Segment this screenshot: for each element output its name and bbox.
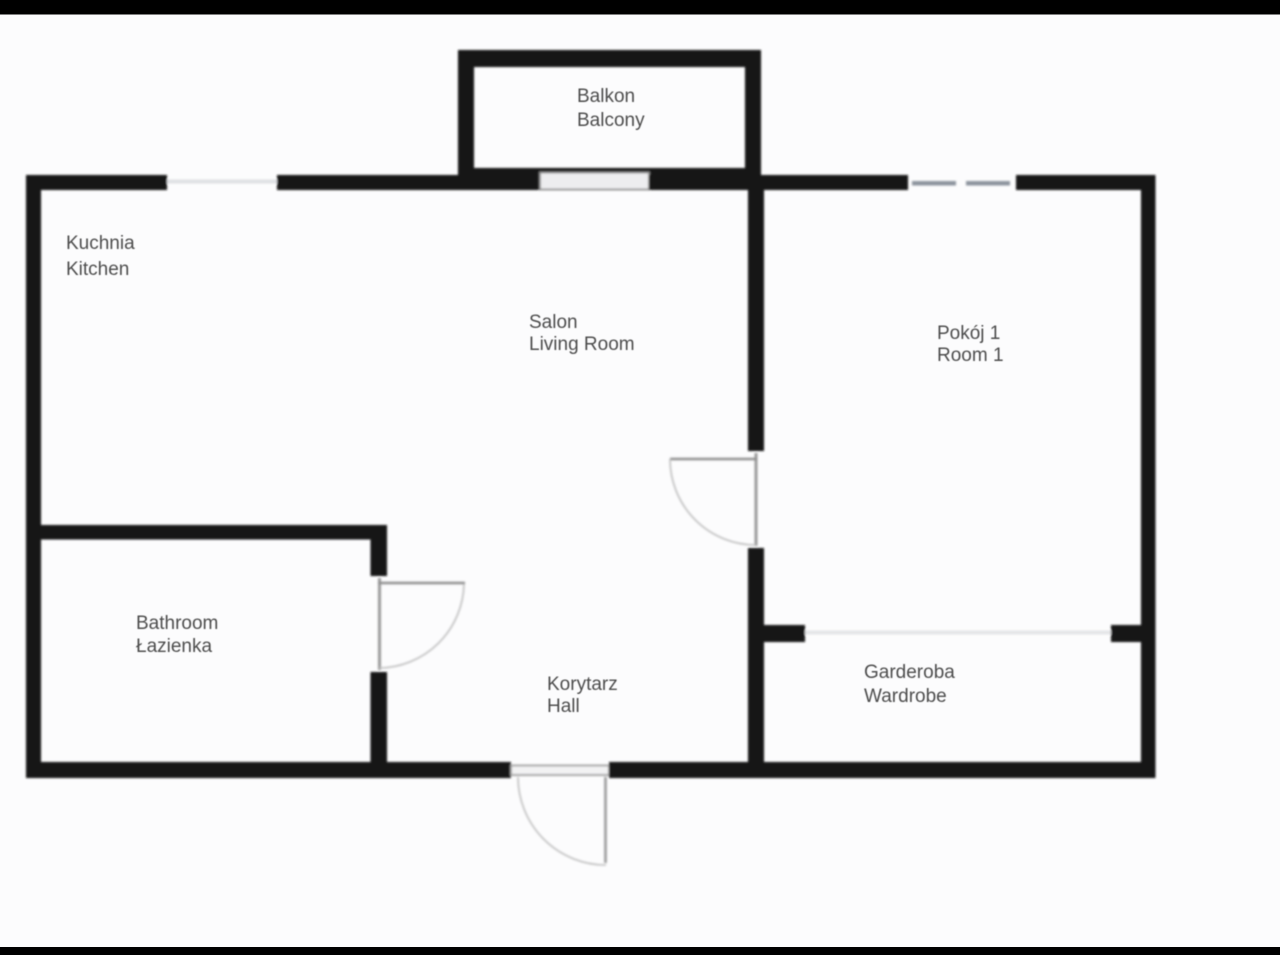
svg-text:Kuchnia: Kuchnia [66, 233, 135, 254]
svg-text:Hall: Hall [547, 696, 580, 717]
svg-text:Living Room: Living Room [529, 334, 635, 355]
svg-text:Salon: Salon [529, 312, 578, 333]
svg-text:Garderoba: Garderoba [864, 662, 955, 683]
svg-text:Room 1: Room 1 [937, 345, 1004, 366]
svg-text:Balkon: Balkon [577, 86, 635, 107]
svg-text:Pokój 1: Pokój 1 [937, 323, 1000, 344]
svg-text:Wardrobe: Wardrobe [864, 686, 947, 707]
svg-text:Łazienka: Łazienka [136, 636, 212, 657]
svg-text:Bathroom: Bathroom [136, 613, 218, 634]
svg-text:Korytarz: Korytarz [547, 674, 618, 695]
svg-text:Kitchen: Kitchen [66, 259, 129, 280]
svg-text:Balcony: Balcony [577, 110, 645, 131]
